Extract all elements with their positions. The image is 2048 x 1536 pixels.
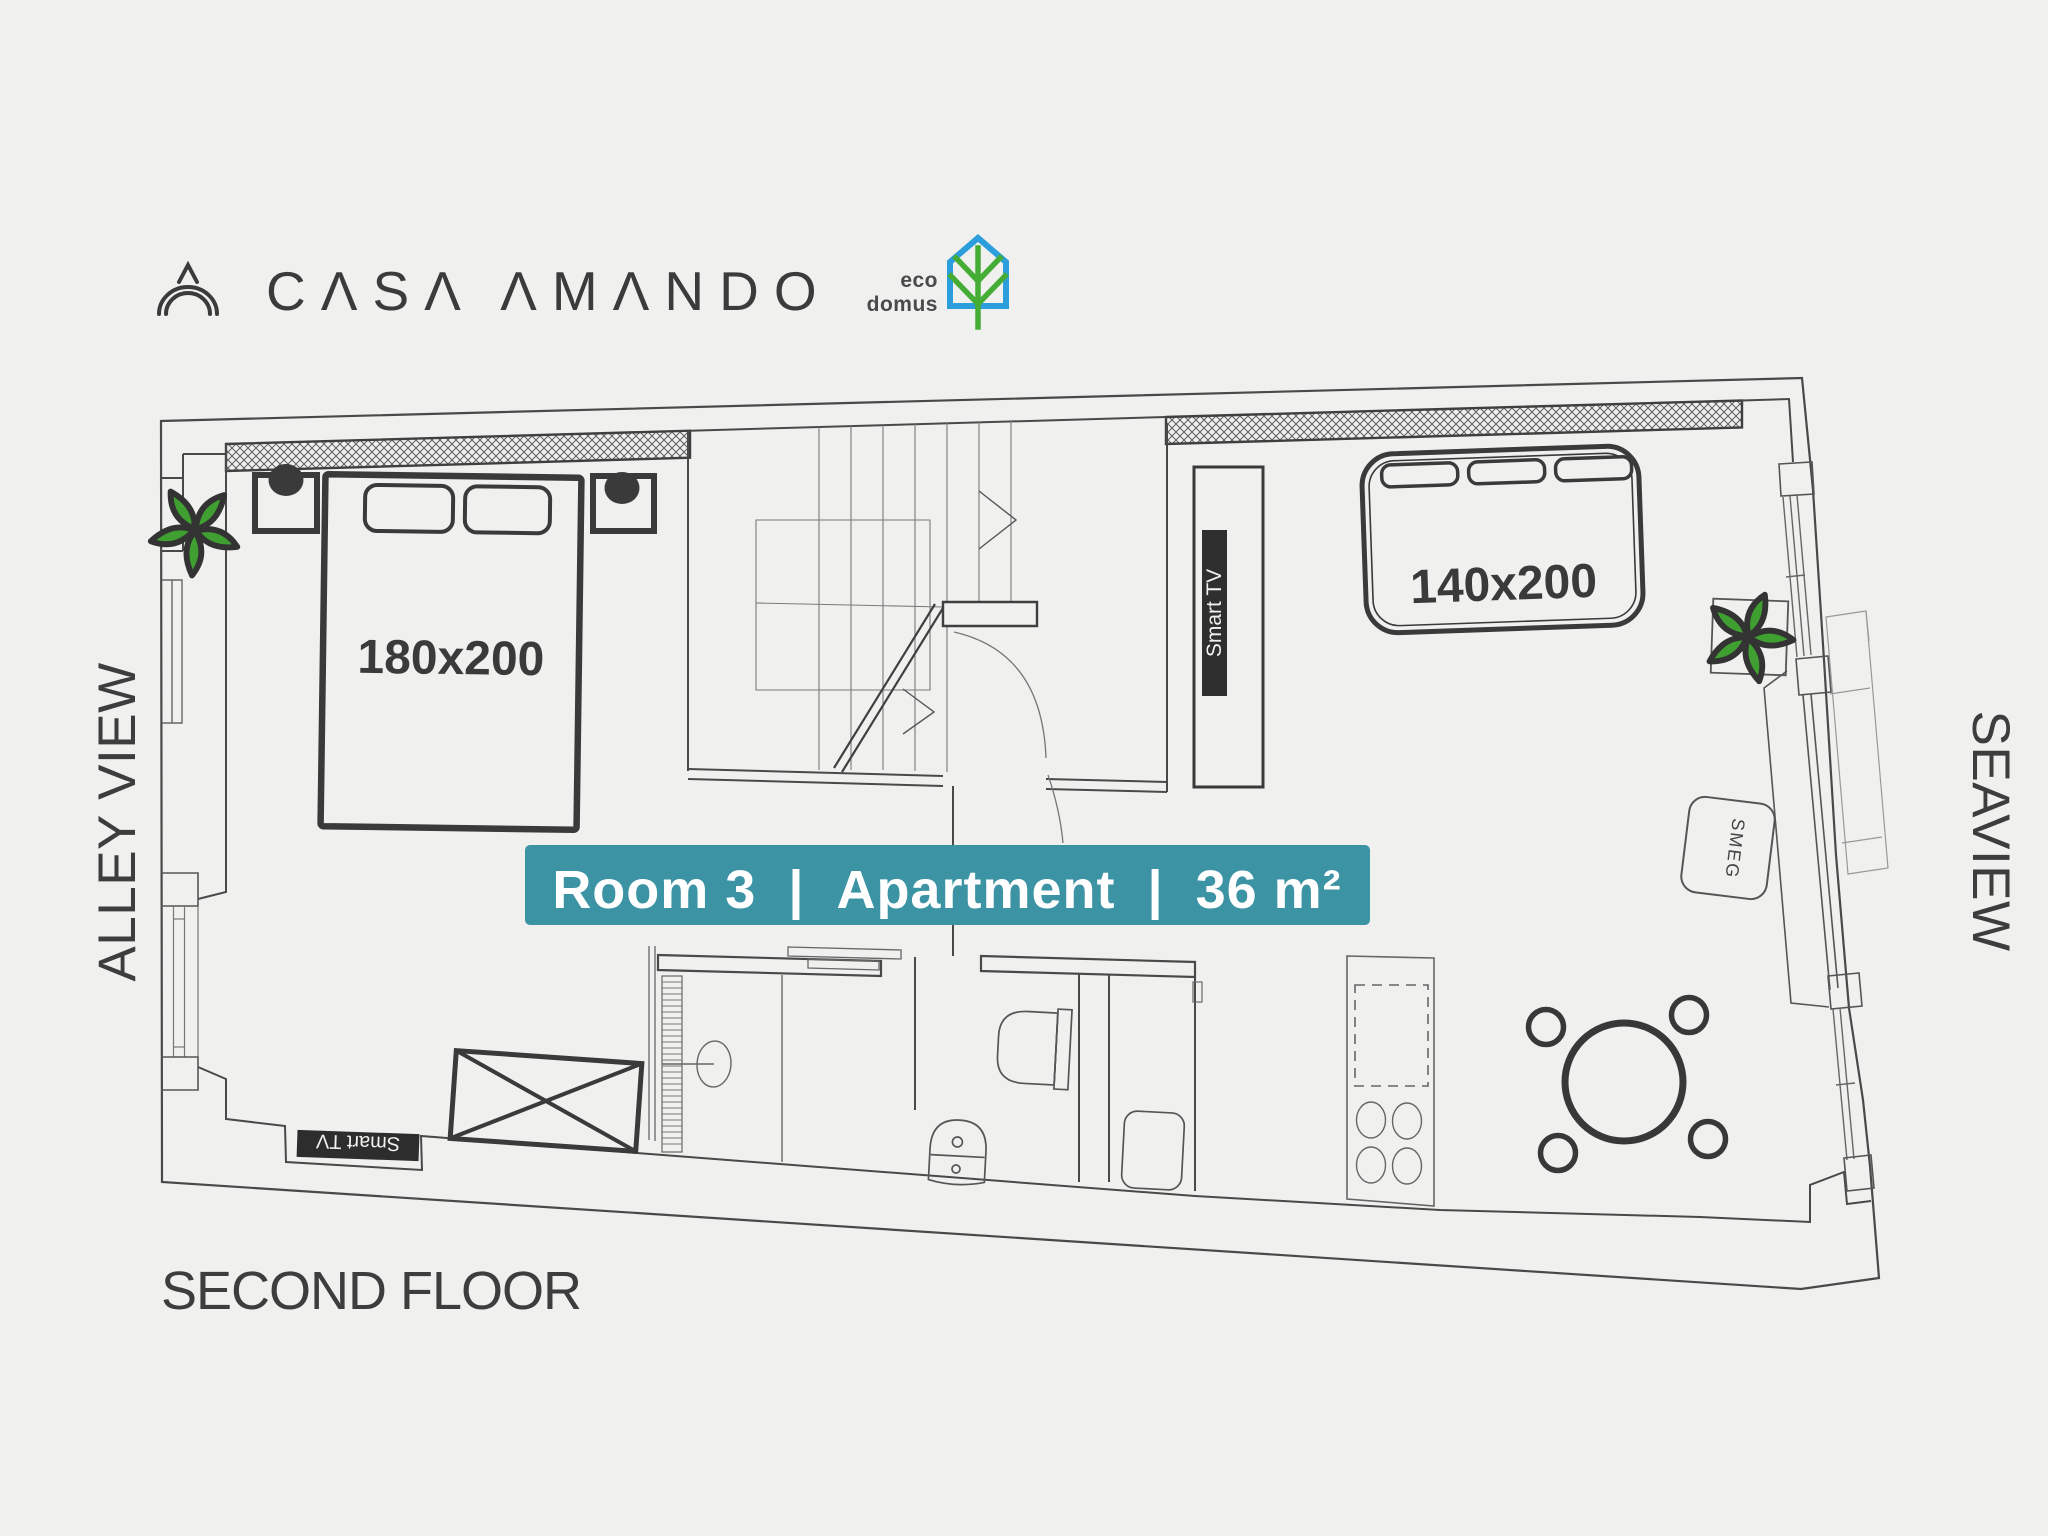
svg-text:SECOND FLOOR: SECOND FLOOR [161,1261,581,1321]
svg-text:eco: eco [900,269,938,292]
svg-text:Smart TV: Smart TV [315,1130,400,1155]
svg-text:Smart TV: Smart TV [1203,569,1226,657]
svg-text:domus: domus [867,293,938,316]
svg-text:CΛSΛ ΛMΛNDO: CΛSΛ ΛMΛNDO [266,260,832,322]
svg-text:140x200: 140x200 [1409,555,1598,614]
svg-text:SEAVIEW: SEAVIEW [1961,710,2020,951]
svg-text:Room 3 | Apartment | 36 m²: Room 3 | Apartment | 36 m² [552,860,1341,921]
svg-text:ALLEY VIEW: ALLEY VIEW [88,662,147,981]
svg-text:180x200: 180x200 [357,631,545,687]
